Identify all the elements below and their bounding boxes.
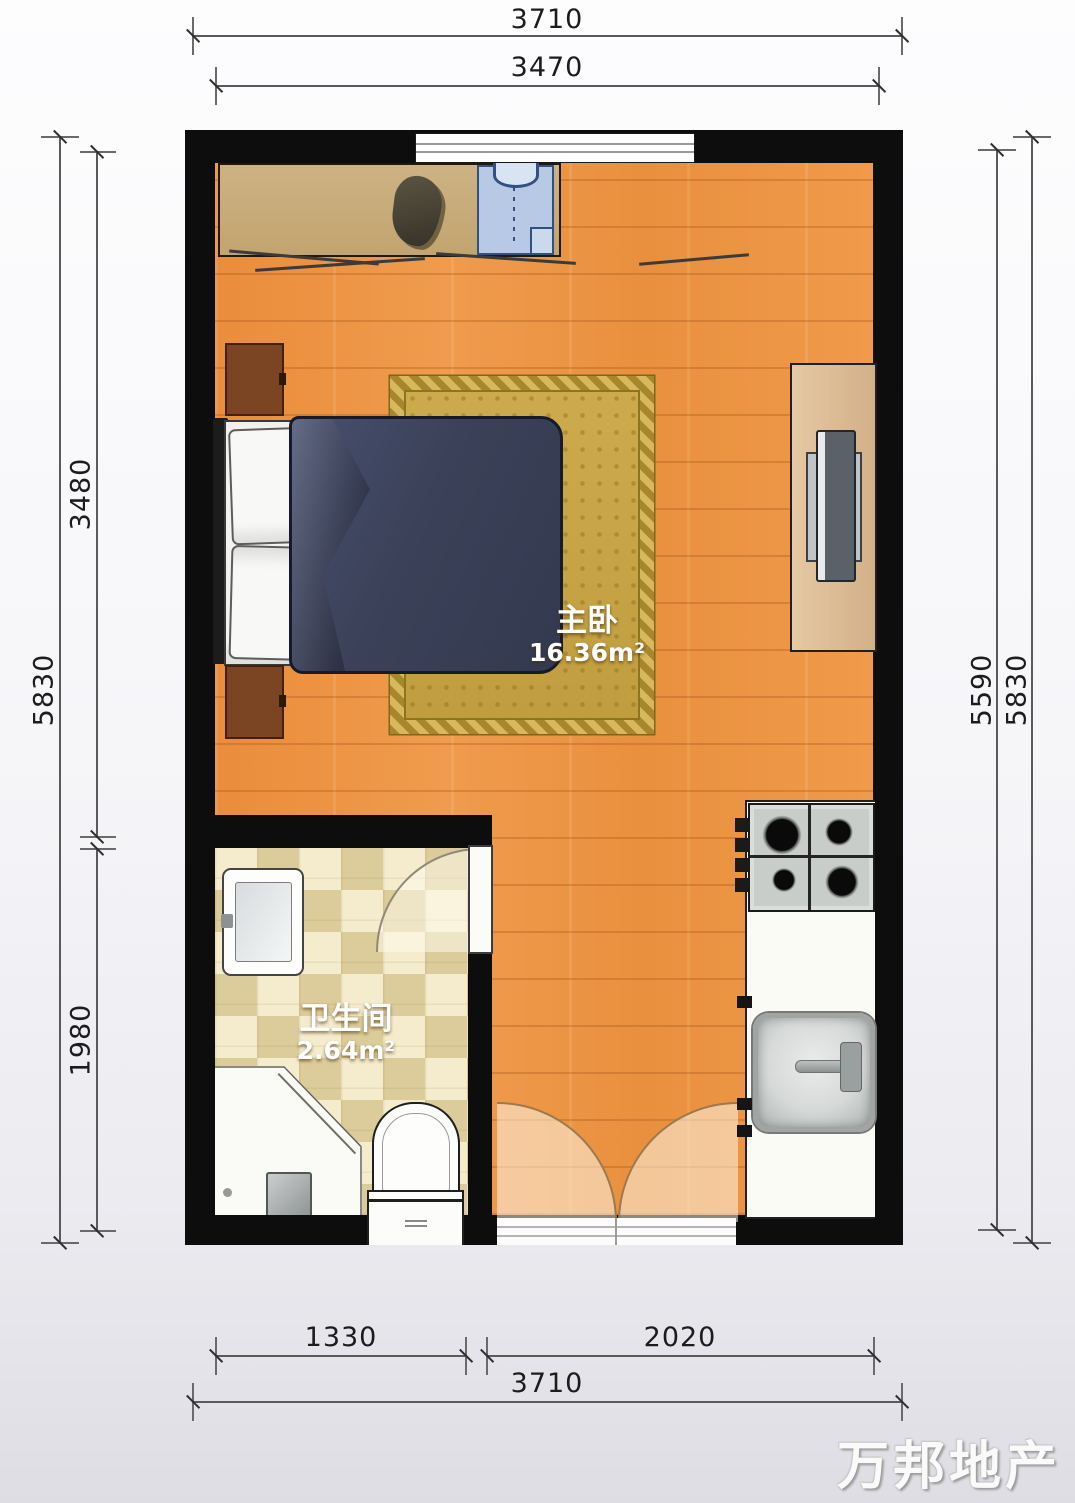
agency-watermark: 万邦地产 bbox=[837, 1424, 1061, 1499]
window bbox=[415, 133, 695, 163]
flush-button bbox=[405, 1220, 427, 1230]
dim-top-outer-label: 3710 bbox=[467, 4, 627, 35]
dim-bottom-right-label: 2020 bbox=[600, 1322, 760, 1353]
dim-left-upper-line bbox=[96, 152, 98, 837]
bathroom-top-wall bbox=[185, 815, 492, 848]
bathroom-right-wall bbox=[468, 950, 492, 1215]
bedroom-name: 主卧 bbox=[507, 604, 667, 638]
shirt-collar bbox=[493, 163, 539, 188]
hanger-lines bbox=[221, 250, 741, 278]
dim-top-inner-line bbox=[216, 85, 879, 87]
kitchen-faucet-base bbox=[840, 1042, 862, 1092]
dim-bottom-right-line bbox=[487, 1355, 874, 1357]
toilet-tank bbox=[367, 1190, 464, 1245]
duvet-fold bbox=[292, 419, 370, 671]
cabinet-hinge bbox=[737, 1125, 752, 1137]
bathroom-label: 卫生间 2.64m² bbox=[261, 1002, 431, 1066]
dim-right-outer-line bbox=[1031, 137, 1033, 1243]
dim-bottom-outer-line bbox=[193, 1401, 902, 1403]
stove-knob bbox=[735, 838, 748, 852]
burner bbox=[761, 814, 803, 856]
bathroom-faucet bbox=[221, 914, 233, 928]
dim-right-inner-line bbox=[996, 150, 998, 1230]
floorplan-image: 主卧 16.36m² 卫生间 2.64m² 3710 3470 5830 348… bbox=[0, 0, 1075, 1503]
bedroom-label: 主卧 16.36m² bbox=[507, 604, 667, 668]
dim-left-lower-label: 1980 bbox=[66, 1004, 97, 1077]
nightstand-handle bbox=[279, 373, 286, 385]
dim-left-outer-line bbox=[59, 137, 61, 1243]
burner bbox=[824, 864, 860, 900]
bathroom-area: 2.64m² bbox=[261, 1036, 431, 1066]
apartment-outline: 主卧 16.36m² 卫生间 2.64m² bbox=[185, 130, 903, 1245]
dim-left-upper-label: 3480 bbox=[66, 458, 97, 531]
dim-right-inner-label: 5590 bbox=[967, 654, 998, 727]
bathroom-name: 卫生间 bbox=[261, 1002, 431, 1036]
nightstand-handle bbox=[279, 695, 286, 707]
shower-knob bbox=[223, 1188, 232, 1197]
bedroom-area: 16.36m² bbox=[507, 638, 667, 668]
shower-unit bbox=[266, 1172, 312, 1219]
dim-left-outer-label: 5830 bbox=[29, 654, 60, 727]
bathroom-sink-basin bbox=[235, 882, 292, 962]
stove-knob bbox=[735, 878, 748, 892]
burner bbox=[824, 817, 854, 847]
bathroom-sink bbox=[222, 868, 304, 976]
dim-top-inner-label: 3470 bbox=[467, 52, 627, 83]
nightstand bbox=[225, 343, 284, 416]
stove-knob bbox=[735, 818, 748, 832]
folded-shirt bbox=[477, 165, 554, 255]
toilet-bowl bbox=[372, 1102, 460, 1202]
balcony-door-threshold bbox=[497, 1218, 736, 1245]
shirt-buttons bbox=[513, 187, 515, 247]
burner bbox=[771, 867, 797, 893]
dim-bottom-outer-label: 3710 bbox=[467, 1368, 627, 1399]
dim-bottom-left-line bbox=[216, 1355, 466, 1357]
dim-right-outer-label: 5830 bbox=[1002, 654, 1033, 727]
nightstand bbox=[225, 665, 284, 739]
stove-knob bbox=[735, 858, 748, 872]
gas-stove bbox=[748, 803, 875, 912]
dim-bottom-left-label: 1330 bbox=[261, 1322, 421, 1353]
dim-left-lower-line bbox=[96, 849, 98, 1231]
bathroom-door-leaf bbox=[468, 845, 493, 954]
cabinet-hinge bbox=[737, 1098, 752, 1110]
tv bbox=[816, 430, 856, 582]
dim-top-outer-line bbox=[193, 35, 902, 37]
cabinet-hinge bbox=[737, 996, 752, 1008]
